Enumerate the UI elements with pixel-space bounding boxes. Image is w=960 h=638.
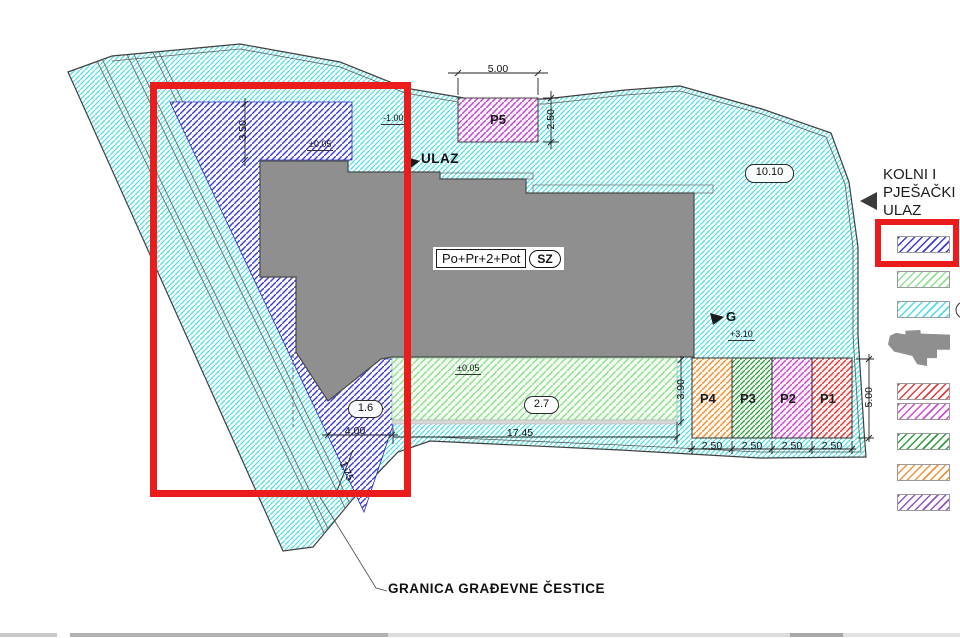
plot-area-tag: 10.10 bbox=[745, 164, 794, 183]
scrollbar-segment bbox=[388, 633, 790, 637]
legend-swatch-parking-purple bbox=[897, 494, 950, 511]
horizontal-scrollbar-track bbox=[0, 633, 960, 637]
level-garage: +3.10 bbox=[728, 330, 755, 341]
legend-swatch-parking-orange bbox=[897, 464, 950, 481]
legend-entrance-arrow-icon bbox=[860, 192, 877, 210]
dim-stall-width: 2.50 bbox=[732, 441, 772, 452]
legend-cut-capsule bbox=[956, 302, 960, 318]
legend-entrance-note-line: PJEŠAČKI bbox=[883, 184, 956, 202]
dim-p5-depth: 2.50 bbox=[546, 94, 557, 144]
dim-garden-length: 17.45 bbox=[495, 428, 545, 439]
legend-swatch-parking-red bbox=[897, 383, 950, 400]
legend-swatch-plot-surface bbox=[897, 301, 950, 318]
dim-stall-width: 2.50 bbox=[692, 441, 732, 452]
legend-swatch-parking-green bbox=[897, 433, 950, 450]
highlight-box-legend-swatch bbox=[875, 219, 959, 267]
highlight-box-access-zone bbox=[150, 82, 411, 497]
scrollbar-segment bbox=[843, 633, 960, 637]
horizontal-scrollbar-thumb[interactable] bbox=[70, 633, 388, 637]
legend-entrance-note: KOLNI I PJEŠAČKI ULAZ bbox=[883, 166, 956, 220]
scrollbar-segment bbox=[0, 633, 57, 637]
building-orientation-label: SZ bbox=[529, 250, 560, 268]
dim-stall-width: 2.50 bbox=[812, 441, 852, 452]
parking-stall-p3-label: P3 bbox=[740, 391, 756, 406]
building-storeys-label: Po+Pr+2+Pot bbox=[436, 249, 526, 268]
parking-stall-p5-label: P5 bbox=[473, 113, 523, 126]
garden-area-tag: 2.7 bbox=[524, 396, 559, 414]
dim-garden-depth: 3.90 bbox=[676, 364, 687, 414]
ulaz-label: ULAZ bbox=[421, 151, 459, 166]
legend-swatch-green-area bbox=[897, 271, 950, 288]
boundary-note: GRANICA GRAĐEVNE ČESTICE bbox=[388, 581, 605, 596]
dim-stall-width: 2.50 bbox=[772, 441, 812, 452]
building-label-box: Po+Pr+2+Pot SZ bbox=[433, 247, 564, 270]
legend-entrance-note-line: ULAZ bbox=[883, 202, 956, 220]
horizontal-scrollbar-thumb[interactable] bbox=[790, 633, 843, 637]
site-plan-canvas bbox=[0, 0, 960, 638]
terrace-step-band bbox=[440, 173, 533, 179]
legend-swatch-parking-magenta bbox=[897, 403, 950, 420]
level-garden: ±0.05 bbox=[455, 364, 481, 375]
dim-parking-depth: 5.00 bbox=[864, 372, 875, 422]
garden-edge-strip bbox=[392, 420, 677, 424]
legend-entrance-note-line: KOLNI I bbox=[883, 166, 956, 184]
parking-stall-p4-label: P4 bbox=[700, 391, 716, 406]
terrace-step-band bbox=[533, 185, 713, 193]
parking-stall-p2-label: P2 bbox=[780, 391, 796, 406]
garage-label: G bbox=[726, 310, 736, 323]
dim-p5-width: 5.00 bbox=[473, 64, 523, 75]
parking-stall-p1-label: P1 bbox=[820, 391, 836, 406]
site-plan-page: 5.00 2.50 P5 -1.00 ULAZ 3.50 ±0.05 10.10… bbox=[0, 0, 960, 638]
